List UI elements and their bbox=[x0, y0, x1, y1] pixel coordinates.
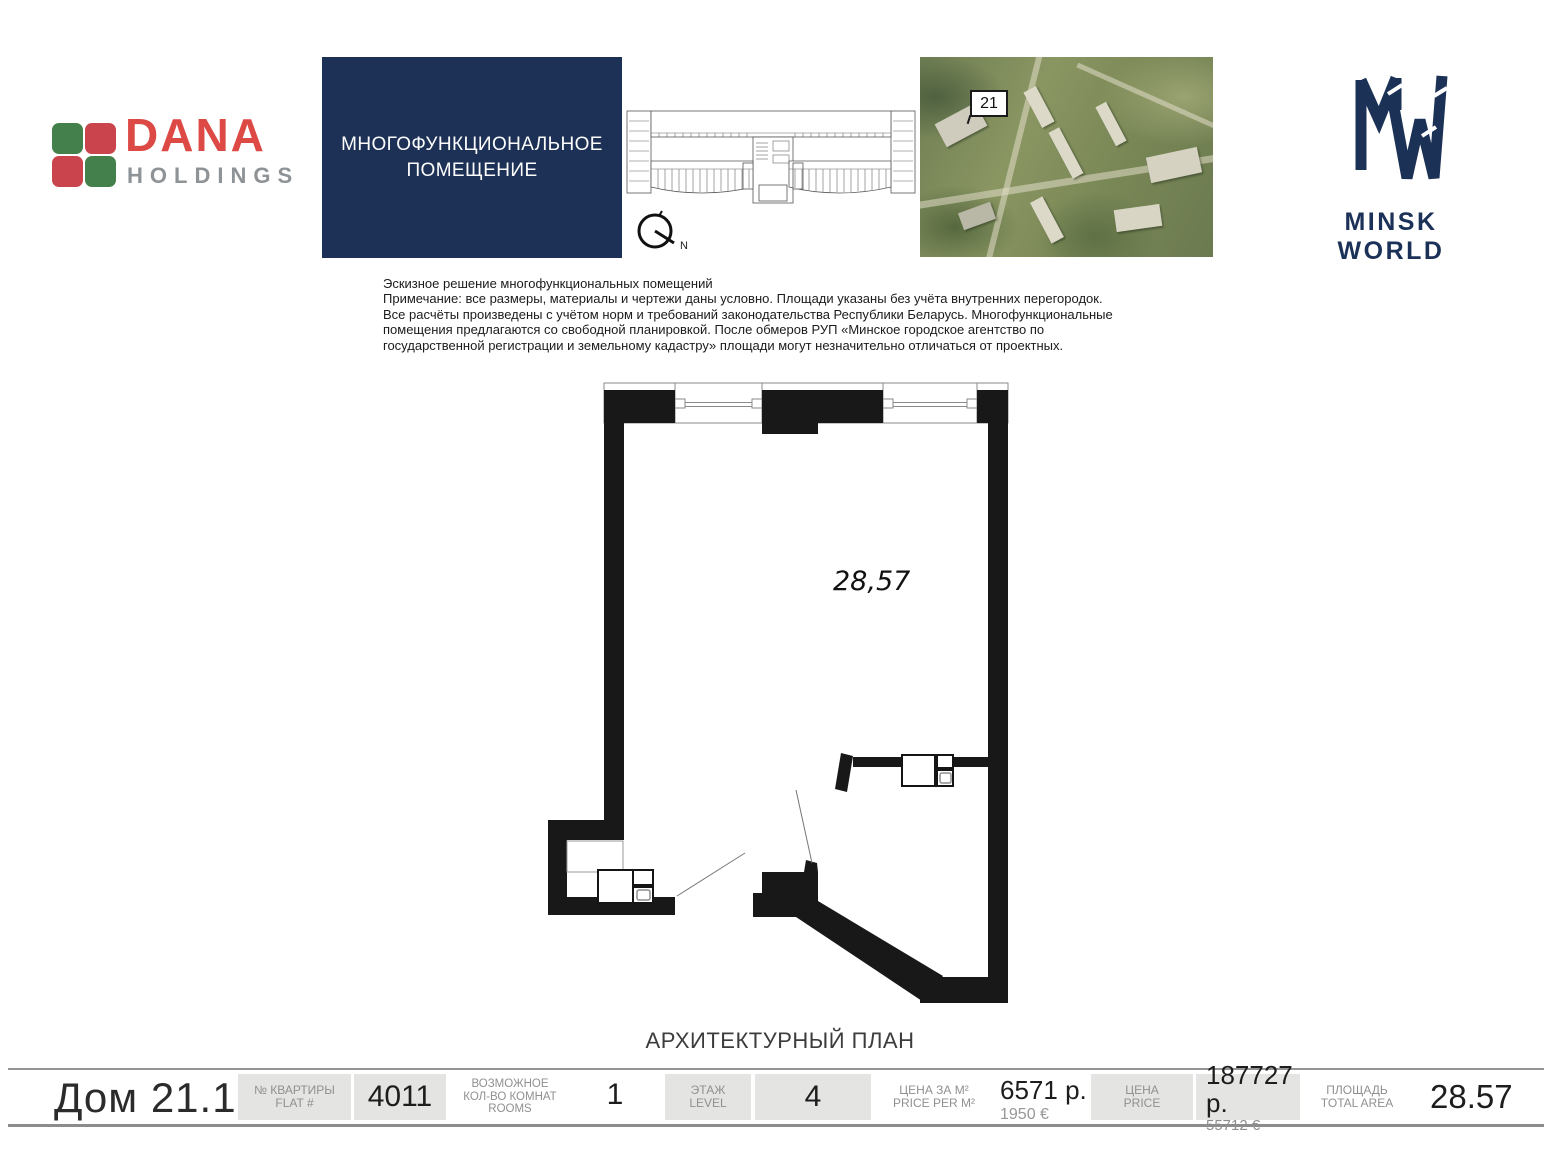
price-label-ru: ЦЕНА bbox=[1125, 1084, 1159, 1098]
price-value-box: 187727 р. 55712 € bbox=[1196, 1074, 1300, 1120]
aerial-building-block bbox=[1095, 102, 1126, 146]
flat-label-en: FLAT # bbox=[275, 1097, 313, 1111]
apartment-floor-plan: 28,57 bbox=[540, 370, 1020, 1020]
aerial-building-block bbox=[1048, 127, 1083, 179]
flat-number-label-box: № КВАРТИРЫ FLAT # bbox=[238, 1074, 351, 1120]
price-per-m2-label-en: PRICE PER M² bbox=[893, 1097, 975, 1111]
flat-number: 4011 bbox=[368, 1080, 433, 1114]
aerial-building-block bbox=[1030, 196, 1064, 243]
dana-square-green-br bbox=[85, 156, 116, 187]
level-number: 4 bbox=[805, 1080, 822, 1114]
minsk-world-monogram bbox=[1348, 64, 1448, 202]
aerial-building-block bbox=[958, 202, 996, 231]
north-compass-icon: N bbox=[634, 205, 698, 255]
price-label-en: PRICE bbox=[1124, 1097, 1161, 1111]
dana-square-green-tl bbox=[52, 123, 83, 154]
level-label-en: LEVEL bbox=[689, 1097, 726, 1111]
price-per-m2-eur: 1950 € bbox=[1000, 1106, 1087, 1124]
plan-caption: АРХИТЕКТУРНЫЙ ПЛАН bbox=[560, 1028, 1000, 1054]
disclaimer-text: Эскизное решение многофункциональных пом… bbox=[383, 276, 1183, 353]
dana-holdings-wordmark: HOLDINGS bbox=[127, 163, 299, 189]
bar-top-divider bbox=[8, 1068, 1544, 1070]
minsk-world-wordmark: MINSK WORLD bbox=[1295, 208, 1487, 266]
compass-north-label: N bbox=[680, 240, 688, 252]
aerial-road bbox=[1076, 63, 1213, 137]
flat-sheet-page: DANA HOLDINGS МНОГОФУНКЦИОНАЛЬНОЕ ПОМЕЩЕ… bbox=[0, 0, 1552, 1172]
price-per-m2-label: ЦЕНА ЗА М² PRICE PER M² bbox=[882, 1074, 986, 1120]
walls bbox=[548, 390, 1008, 1003]
plumbing-fixtures bbox=[567, 755, 953, 903]
price-per-m2-values: 6571 р. 1950 € bbox=[1000, 1076, 1087, 1124]
room-area-label: 28,57 bbox=[833, 566, 910, 597]
rooms-label-l2: КОЛ-ВО КОМНАТ bbox=[463, 1091, 556, 1104]
rooms-label-l1: ВОЗМОЖНОЕ bbox=[472, 1078, 549, 1091]
total-area-label: ПЛОЩАДЬ TOTAL AREA bbox=[1312, 1074, 1402, 1120]
aerial-building-block bbox=[1146, 147, 1202, 183]
dana-square-red-tr bbox=[85, 123, 116, 154]
rooms-count: 1 bbox=[595, 1078, 635, 1112]
building-21-tag: 21 bbox=[970, 90, 1008, 117]
level-value-box: 4 bbox=[755, 1074, 871, 1120]
price-per-m2-label-ru: ЦЕНА ЗА М² bbox=[899, 1084, 968, 1098]
price-eur: 55712 € bbox=[1206, 1117, 1260, 1134]
total-area-label-en: TOTAL AREA bbox=[1321, 1097, 1393, 1111]
aerial-building-block bbox=[1114, 204, 1163, 232]
rooms-label: ВОЗМОЖНОЕ КОЛ-ВО КОМНАТ ROOMS bbox=[452, 1074, 568, 1120]
flat-label-ru: № КВАРТИРЫ bbox=[254, 1084, 335, 1098]
level-label-box: ЭТАЖ LEVEL bbox=[665, 1074, 751, 1120]
dana-holdings-logo: DANA HOLDINGS bbox=[48, 115, 308, 195]
house-number: Дом 21.1 bbox=[54, 1074, 237, 1122]
document-title-box: МНОГОФУНКЦИОНАЛЬНОЕ ПОМЕЩЕНИЕ bbox=[322, 57, 622, 258]
rooms-label-l3: ROOMS bbox=[488, 1103, 531, 1116]
price-byn: 187727 р. bbox=[1206, 1061, 1300, 1117]
dana-wordmark: DANA bbox=[125, 113, 266, 157]
level-label-ru: ЭТАЖ bbox=[691, 1084, 726, 1098]
price-label-box: ЦЕНА PRICE bbox=[1091, 1074, 1193, 1120]
dana-square-red-bl bbox=[52, 156, 83, 187]
bar-bottom-divider bbox=[8, 1124, 1544, 1127]
total-area-label-ru: ПЛОЩАДЬ bbox=[1326, 1084, 1388, 1098]
price-per-m2-byn: 6571 р. bbox=[1000, 1076, 1087, 1105]
building-overview-plan bbox=[625, 95, 917, 207]
flat-number-value-box: 4011 bbox=[354, 1074, 446, 1120]
total-area-value: 28.57 bbox=[1430, 1078, 1513, 1116]
masterplan-aerial-photo: 21 bbox=[920, 57, 1213, 257]
document-title: МНОГОФУНКЦИОНАЛЬНОЕ ПОМЕЩЕНИЕ bbox=[341, 132, 603, 184]
